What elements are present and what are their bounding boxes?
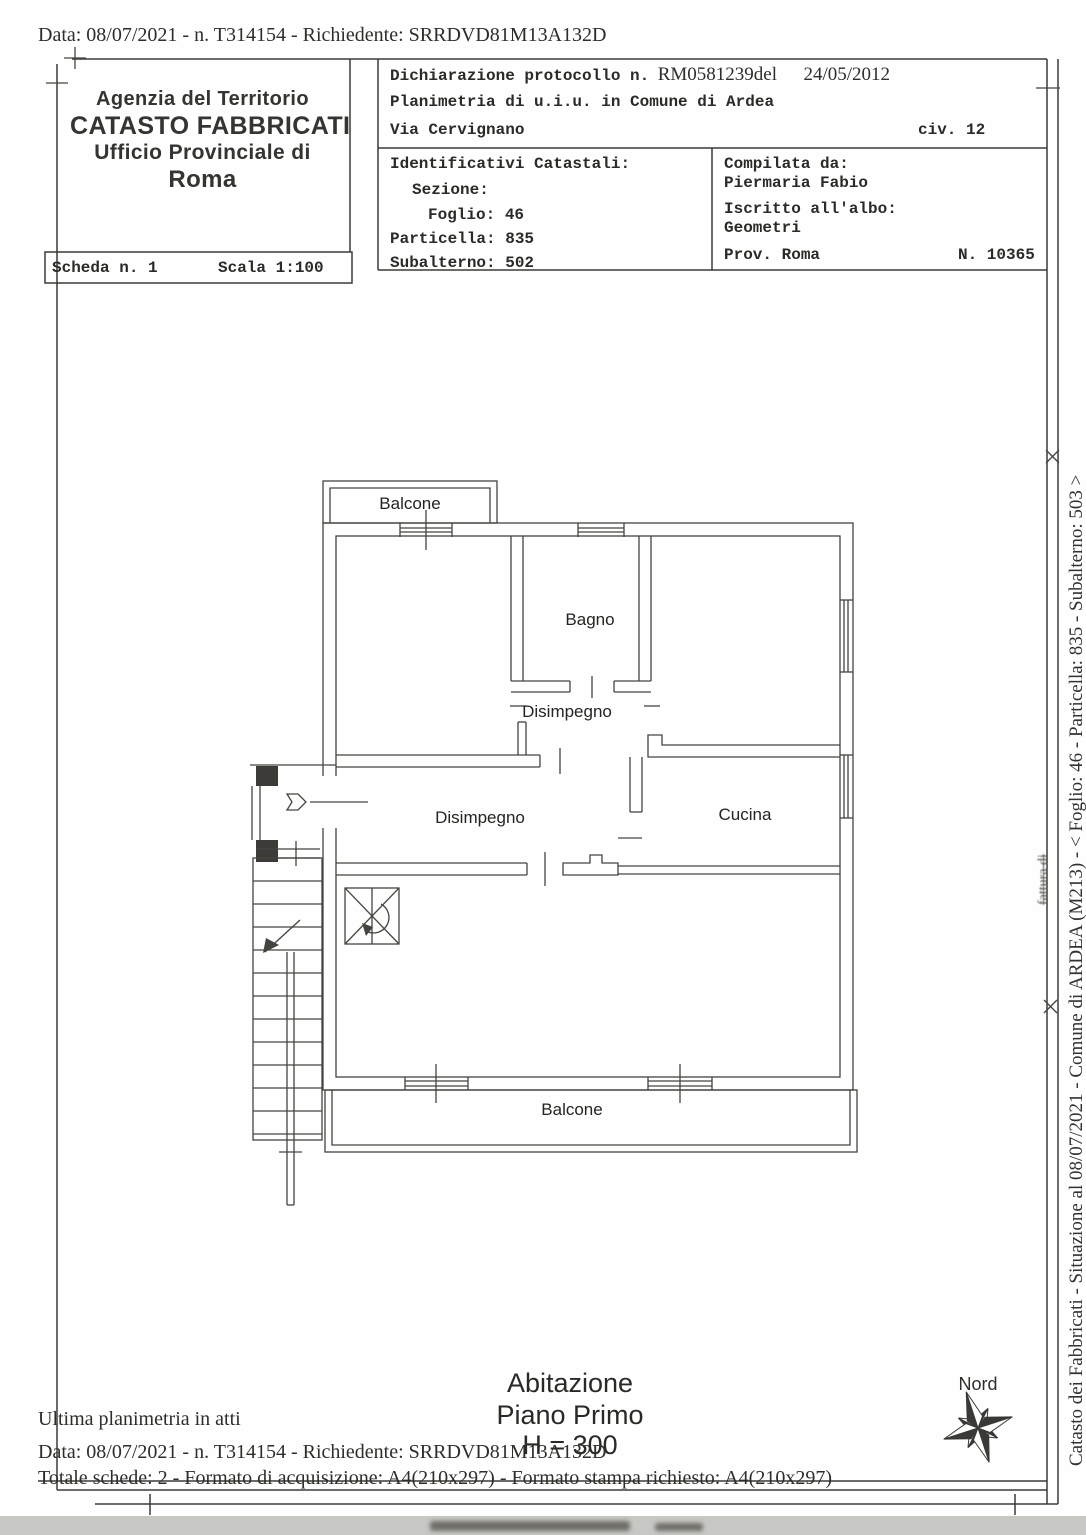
compiler-number: N. 10365 [958, 246, 1035, 264]
footer-ultima-line: Ultima planimetria in atti [38, 1408, 241, 1431]
cadastral-sezione: Sezione: [412, 181, 489, 199]
staircase [253, 858, 322, 1205]
cadastral-title: Identificativi Catastali: [390, 155, 630, 173]
cadastral-particella: Particella: 835 [390, 230, 534, 248]
agency-name: Agenzia del Territorio [70, 88, 335, 111]
room-label-cucina: Cucina [685, 805, 805, 825]
scan-smudge [655, 1523, 703, 1531]
agency-office-line: Ufficio Provinciale di [70, 141, 335, 165]
compiler-prov: Prov. Roma [724, 246, 820, 264]
agency-office-title: CATASTO FABBRICATI [70, 112, 335, 141]
elevator-symbol [345, 888, 399, 944]
room-label-balcone-top: Balcone [350, 494, 470, 514]
document-line-art [0, 0, 1086, 1535]
scheda-number: Scheda n. 1 [52, 259, 158, 277]
protocol-label: Dichiarazione protocollo n. [390, 67, 649, 85]
compass-north-label: Nord [938, 1374, 1018, 1395]
sidebar-vertical-text: Catasto dei Fabbricati - Situazione al 0… [1066, 454, 1086, 1466]
agency-province: Roma [70, 166, 335, 194]
scanner-edge-band [0, 1516, 1086, 1535]
cadastral-document-page: Data: 08/07/2021 - n. T314154 - Richiede… [0, 0, 1086, 1535]
sidebar-print-artifact: fattura di [1036, 815, 1052, 905]
cadastral-foglio: Foglio: 46 [428, 206, 524, 224]
compiler-label: Compilata da: [724, 155, 849, 173]
page-borders [38, 59, 1058, 1515]
civic-number: civ. 12 [918, 121, 985, 139]
room-label-balcone-bottom: Balcone [512, 1100, 632, 1120]
interior-walls [336, 722, 840, 886]
compiler-albo: Geometri [724, 219, 801, 237]
caption-floor: Piano Primo [420, 1400, 720, 1431]
room-label-disimpegno-lower: Disimpegno [400, 808, 560, 828]
street-line: Via Cervignano [390, 121, 524, 139]
footer-totale-line: Totale schede: 2 - Formato di acquisizio… [38, 1467, 832, 1490]
protocol-number: RM0581239del [658, 64, 777, 85]
request-line-top: Data: 08/07/2021 - n. T314154 - Richiede… [38, 24, 606, 47]
scala-value: Scala 1:100 [218, 259, 324, 277]
scan-smudge [430, 1521, 630, 1531]
declaration-protocol-line: Dichiarazione protocollo n. RM0581239del… [390, 64, 890, 86]
compiler-name: Piermaria Fabio [724, 174, 868, 192]
protocol-date: 24/05/2012 [803, 64, 890, 85]
footer-request-line: Data: 08/07/2021 - n. T314154 - Richiede… [38, 1441, 606, 1464]
caption-dwelling-type: Abitazione [420, 1368, 720, 1399]
room-label-disimpegno-upper: Disimpegno [487, 702, 647, 722]
planimetria-line: Planimetria di u.i.u. in Comune di Ardea [390, 93, 774, 111]
compiler-albo-label: Iscritto all'albo: [724, 200, 897, 218]
floor-plan [250, 481, 857, 1205]
cadastral-subalterno: Subalterno: 502 [390, 254, 534, 272]
room-label-bagno: Bagno [530, 610, 650, 630]
